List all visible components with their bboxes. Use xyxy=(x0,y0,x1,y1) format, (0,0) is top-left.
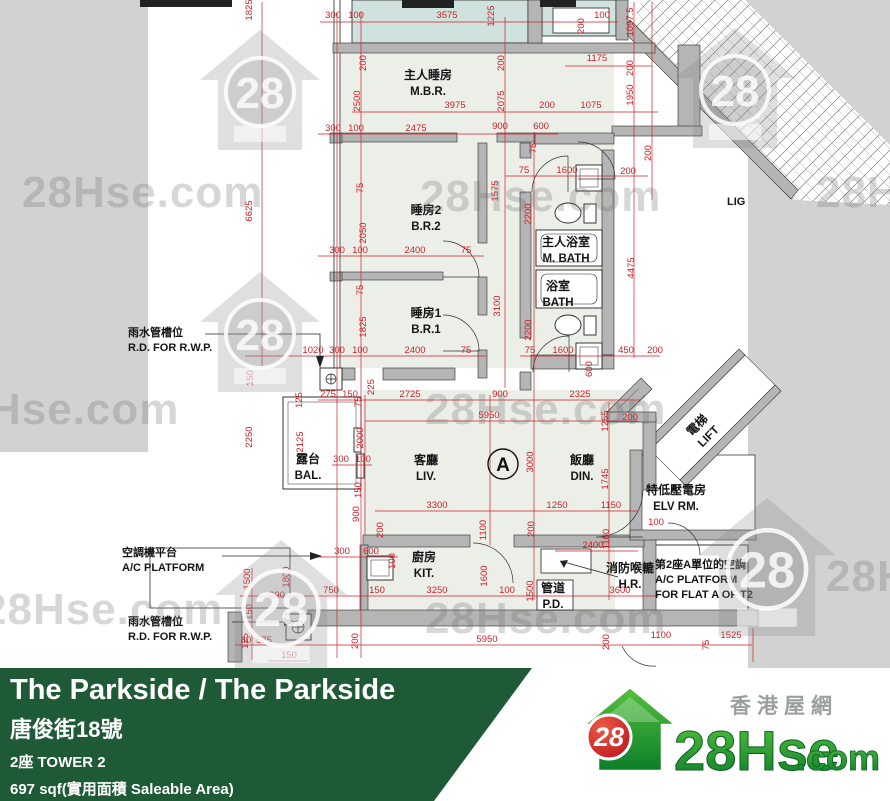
room-label-cn: 主人浴室 xyxy=(542,234,590,249)
svg-text:28: 28 xyxy=(593,722,624,752)
annotation-label: 空調機平台 xyxy=(122,545,177,559)
dimension-label: 5950 xyxy=(476,634,497,645)
dimension-label: 450 xyxy=(618,345,634,356)
room-label-en: M. BATH xyxy=(542,253,589,265)
room-label-en: KIT. xyxy=(414,568,434,580)
floor-plan-image: A 300100357512252001001097.5182566252002… xyxy=(0,0,890,668)
dimension-label: 1600 xyxy=(479,565,490,586)
dimension-label: 290 xyxy=(269,590,285,601)
room-label-cn: 睡房1 xyxy=(411,305,442,320)
dimension-label: 150 xyxy=(244,604,255,620)
dimension-label: 1175 xyxy=(587,53,607,64)
dimension-label: 1600 xyxy=(556,165,577,176)
dimension-label: 1600 xyxy=(552,345,573,356)
dimension-label: 200 xyxy=(539,100,555,111)
annotation-label: R.D. FOR R.W.P. xyxy=(128,631,212,643)
dimension-label: 2200 xyxy=(523,203,534,224)
logo-28-badge: 28 xyxy=(587,715,631,759)
room-label-en: M.B.R. xyxy=(410,86,446,98)
dimension-label: 200 xyxy=(375,522,386,538)
dimension-label: 2400 xyxy=(404,345,425,356)
room-label-en: BATH xyxy=(542,297,573,309)
dimension-label: 600 xyxy=(533,121,549,132)
room-label-cn: 睡房2 xyxy=(411,202,442,217)
floorplan-page: A 300100357512252001001097.5182566252002… xyxy=(0,0,890,801)
dimension-label: 300 xyxy=(333,454,349,465)
dimension-label: 200 xyxy=(526,521,537,537)
dimension-label: 900 xyxy=(492,389,508,400)
room-label-cn: 廚房 xyxy=(412,549,436,564)
dimension-label: 75 xyxy=(461,245,472,256)
dimension-label: 200 xyxy=(576,18,587,34)
annotation-label: LIG xyxy=(727,196,745,208)
cropped-label-fragment xyxy=(140,0,232,7)
site-logo[interactable]: 28 香港屋網 28Hse .com xyxy=(582,675,884,797)
unit-marker-letter: A xyxy=(496,455,510,476)
toilet xyxy=(555,315,581,335)
dimension-label: 100 xyxy=(387,553,398,569)
room-label-cn: 消防喉轆 xyxy=(606,560,654,575)
dimension-label: 100 xyxy=(352,245,368,256)
dimension-label: 40 xyxy=(241,635,252,646)
dimension-label: 2125 xyxy=(295,431,306,452)
dimension-label: 600 xyxy=(584,361,595,377)
room-label-cn: 客廳 xyxy=(413,452,438,467)
dimension-label: 2000 xyxy=(355,427,366,448)
dimension-label: 1250 xyxy=(546,500,567,511)
dimension-label: 1100 xyxy=(651,630,671,641)
dimension-label: 4475 xyxy=(626,257,637,278)
dimension-label: 1575 xyxy=(490,180,501,201)
room-label-en: LIV. xyxy=(416,471,436,483)
dimension-label: 200 xyxy=(601,634,612,650)
dimension-label: 75 xyxy=(528,143,539,154)
dimension-label: 100 xyxy=(594,10,610,21)
dimension-label: 225 xyxy=(366,379,377,395)
dimension-label: 1950 xyxy=(625,84,636,105)
dimension-label: 75 xyxy=(355,183,366,194)
dimension-label: 300 xyxy=(329,345,345,356)
logo-site-tld: .com xyxy=(796,737,880,778)
dimension-label: 900 xyxy=(492,121,508,132)
room-label-en: B.R.2 xyxy=(411,221,440,233)
info-banner: The Parkside / The Parkside 唐俊街18號 2座 TO… xyxy=(0,668,890,801)
dimension-label: 3975 xyxy=(444,100,465,111)
dimension-label: 75 xyxy=(355,285,366,296)
dimension-label: 1825 xyxy=(358,316,369,337)
dimension-label: 3575 xyxy=(436,10,457,21)
dimension-label: 1020 xyxy=(302,345,323,356)
room-label-cn: 飯廳 xyxy=(569,452,594,467)
dimension-label: 5950 xyxy=(478,410,499,421)
dimension-label: 300 xyxy=(334,546,350,557)
dimension-label: 150 xyxy=(353,482,364,498)
room-label-en: P.D. xyxy=(543,599,564,611)
dimension-label: 3100 xyxy=(492,295,503,316)
dimension-label: 3000 xyxy=(525,451,536,472)
room-label-en: H.R. xyxy=(619,579,642,591)
dimension-label: 300 xyxy=(329,245,345,256)
dimension-label: 2200 xyxy=(523,319,534,340)
dimension-label: 1097.5 xyxy=(625,7,636,36)
dimension-label: 750 xyxy=(323,585,339,596)
outside-area-left xyxy=(0,0,148,452)
dimension-label: 100 xyxy=(648,517,664,528)
dimension-label: 200 xyxy=(625,60,636,76)
annotation-label: A/C PLATFORM xyxy=(655,574,737,586)
dimension-label: 300 xyxy=(325,123,341,134)
dimension-label: 2725 xyxy=(399,389,420,400)
dimension-label: 2050 xyxy=(358,222,369,243)
dimension-label: 6625 xyxy=(244,200,255,221)
dimension-label: 2075 xyxy=(496,90,507,111)
dimension-label: 600 xyxy=(363,546,379,557)
dimension-label: 75 xyxy=(353,397,364,408)
dimension-label: 200 xyxy=(358,55,369,71)
dimension-label: 200 xyxy=(496,55,507,71)
dimension-label: 200 xyxy=(622,412,638,423)
dimension-label: 1745 xyxy=(600,468,611,489)
room-label-cn: 管道 xyxy=(541,580,565,595)
dimension-label: 300 xyxy=(325,10,341,21)
dimension-label: 150 xyxy=(281,650,297,661)
dimension-label: 100 xyxy=(348,123,364,134)
dimension-label: 1825 xyxy=(244,0,255,21)
dimension-label: 200 xyxy=(350,633,361,649)
annotation-label: A/C PLATFORM xyxy=(122,562,204,574)
dimension-label: 1525 xyxy=(720,630,741,641)
dimension-label: 1500 xyxy=(525,580,536,601)
dimension-label: 1100 xyxy=(478,520,489,540)
dimension-label: 275 xyxy=(320,389,336,400)
dimension-label: 2500 xyxy=(352,90,363,111)
dimension-label: 200 xyxy=(643,145,654,161)
cropped-label-fragment xyxy=(540,0,576,7)
dimension-label: 150 xyxy=(245,370,256,386)
annotation-label: 雨水管槽位 xyxy=(128,325,183,339)
dimension-label: 1100 xyxy=(601,529,612,549)
annotation-label: R.D. FOR R.W.P. xyxy=(128,342,212,354)
dimension-label: 100 xyxy=(499,585,515,596)
dimension-label: 1225 xyxy=(486,5,497,26)
room-label-en: BAL. xyxy=(295,470,322,482)
dimension-label: 2325 xyxy=(569,389,590,400)
room-label-cn: 特低壓電房 xyxy=(646,482,706,497)
dimension-label: 575 xyxy=(256,635,272,646)
dimension-label: 200 xyxy=(647,345,663,356)
room-label-cn: 主人睡房 xyxy=(404,67,452,82)
logo-chinese-name: 香港屋網 xyxy=(730,694,838,718)
dimension-label: 2250 xyxy=(244,426,255,447)
dimension-label: 125 xyxy=(294,392,305,408)
annotation-label: FOR FLAT A OF T2 xyxy=(655,589,753,601)
dimension-label: 3250 xyxy=(426,585,447,596)
room-label-cn: 露台 xyxy=(296,451,320,466)
room-label-en: ELV RM. xyxy=(653,501,699,513)
dimension-label: 2400 xyxy=(404,245,425,256)
dimension-label: 1500 xyxy=(242,568,253,589)
dimension-label: 1150 xyxy=(601,500,621,511)
dimension-label: 900 xyxy=(351,506,362,522)
dimension-label: 1255 xyxy=(600,410,611,431)
cropped-label-fragment xyxy=(402,0,454,8)
dimension-label: 150 xyxy=(369,585,385,596)
dimension-label: 75 xyxy=(519,165,530,176)
room-label-cn: 浴室 xyxy=(546,278,570,293)
toilet-master xyxy=(555,203,581,223)
dimension-label: 3300 xyxy=(426,500,447,511)
dimension-label: 75 xyxy=(525,345,536,356)
floor-plan: A 300100357512252001001097.5182566252002… xyxy=(0,0,890,668)
room-label-en: B.R.1 xyxy=(411,324,441,336)
dimension-label: 200 xyxy=(620,166,636,177)
dimension-label: 1800 xyxy=(281,566,292,587)
room-label-en: DIN. xyxy=(571,471,594,483)
dimension-label: 100 xyxy=(348,10,364,21)
annotation-label: 第2座A單位的空調 xyxy=(655,557,746,571)
dimension-label: 100 xyxy=(355,454,371,465)
dimension-label: 100 xyxy=(352,345,368,356)
dimension-label: 75 xyxy=(461,345,472,356)
dimension-label: 1075 xyxy=(580,100,601,111)
dimension-label: 2475 xyxy=(405,123,426,134)
annotation-label: 雨水管槽位 xyxy=(128,614,183,628)
dimension-label: 75 xyxy=(701,640,712,651)
